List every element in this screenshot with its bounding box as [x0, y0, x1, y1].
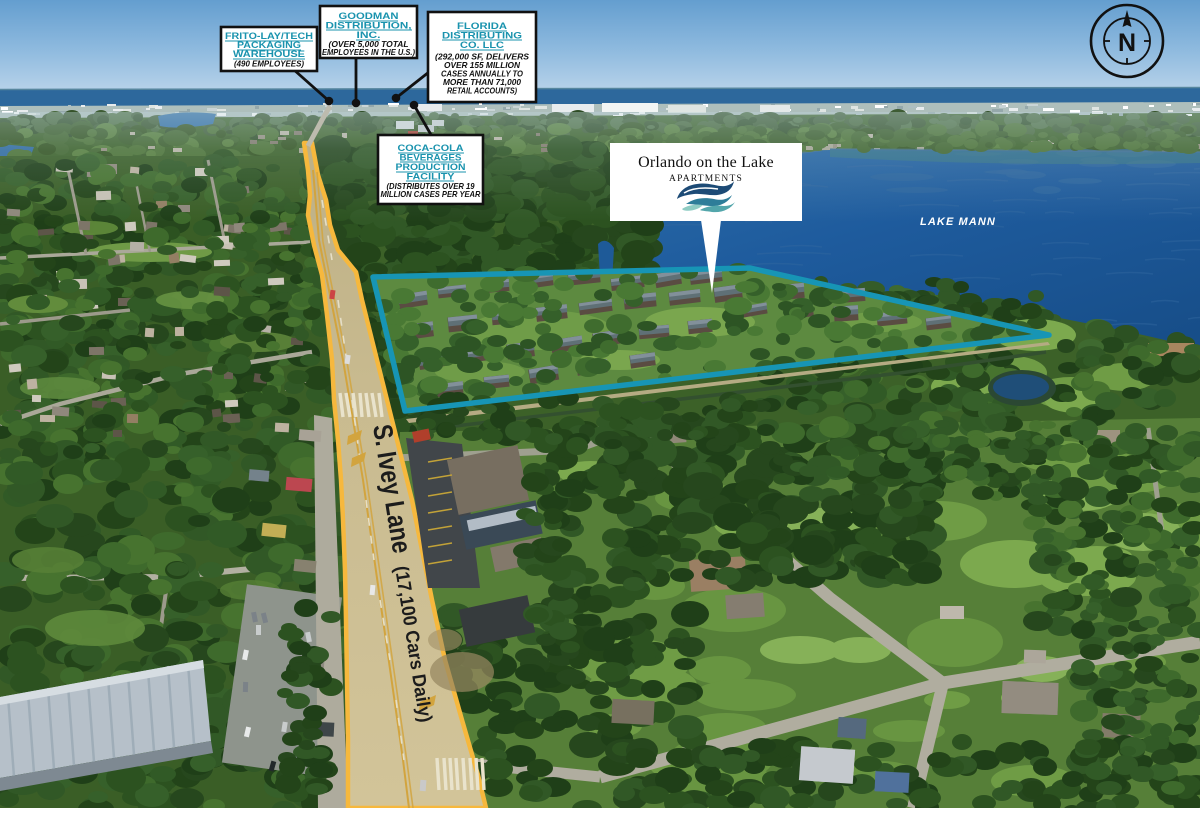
svg-text:MILLION CASES PER YEAR: MILLION CASES PER YEAR	[381, 190, 481, 199]
svg-text:Orlando on the Lake: Orlando on the Lake	[638, 154, 774, 171]
svg-text:N: N	[1118, 29, 1136, 57]
svg-text:CO. LLC: CO. LLC	[460, 40, 504, 51]
svg-text:APARTMENTS: APARTMENTS	[669, 174, 743, 184]
svg-text:RETAIL ACCOUNTS): RETAIL ACCOUNTS)	[447, 87, 517, 96]
svg-text:(490 EMPLOYEES): (490 EMPLOYEES)	[234, 60, 304, 69]
svg-text:EMPLOYEES IN THE U.S.): EMPLOYEES IN THE U.S.)	[322, 48, 415, 57]
svg-text:LAKE MANN: LAKE MANN	[920, 216, 996, 228]
svg-text:WAREHOUSE: WAREHOUSE	[233, 49, 306, 60]
